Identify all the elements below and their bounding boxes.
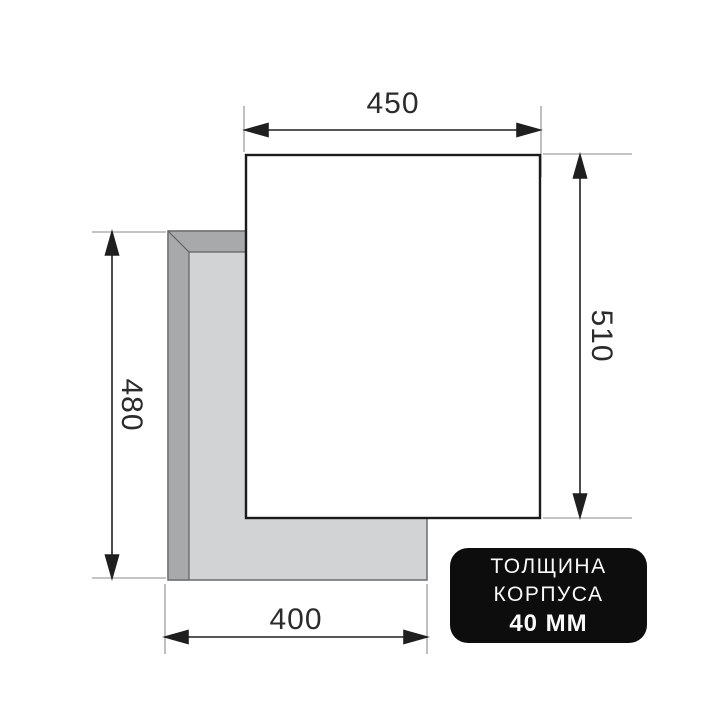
badge-line-2: КОРПУСА xyxy=(494,581,604,609)
arrowhead-400-right xyxy=(404,631,427,644)
arrowhead-480-bottom xyxy=(106,555,119,578)
arrowhead-510-top xyxy=(574,155,587,178)
arrowhead-450-right xyxy=(517,124,540,137)
dimension-label-450: 450 xyxy=(338,87,448,121)
installation-diagram-canvas: 450 510 480 400 ТОЛЩИНА КОРПУСА 40 ММ xyxy=(0,0,720,720)
body-thickness-badge: ТОЛЩИНА КОРПУСА 40 ММ xyxy=(450,548,647,643)
arrowhead-400-left xyxy=(165,631,188,644)
dimension-label-480: 480 xyxy=(114,350,148,460)
panel-outline xyxy=(246,155,540,518)
badge-line-3: 40 ММ xyxy=(509,609,587,638)
arrowhead-450-left xyxy=(245,124,268,137)
arrowhead-480-top xyxy=(106,232,119,255)
dimension-label-510: 510 xyxy=(584,281,618,391)
arrowhead-510-bottom xyxy=(574,494,587,517)
badge-line-1: ТОЛЩИНА xyxy=(490,553,606,581)
dimension-label-400: 400 xyxy=(241,603,351,637)
